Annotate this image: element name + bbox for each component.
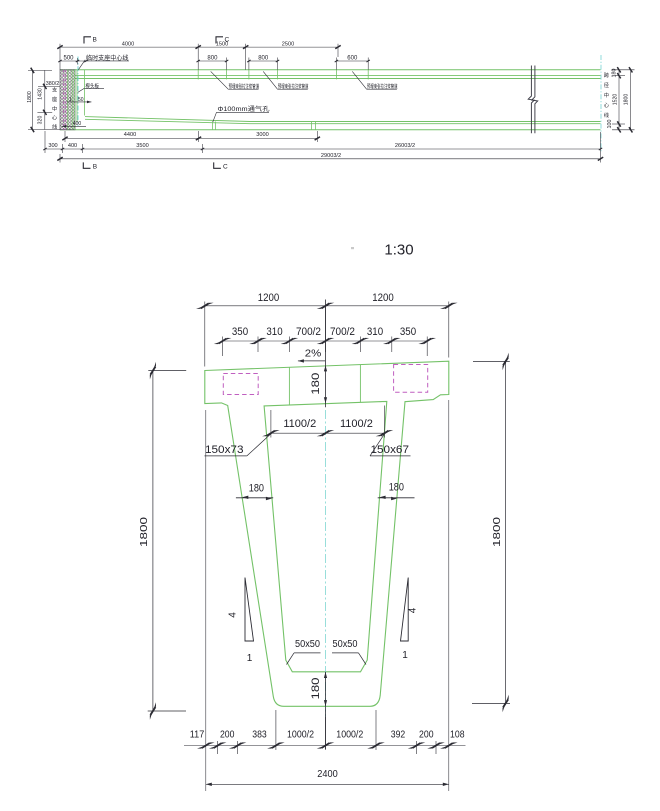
svg-text:380/2: 380/2: [46, 81, 60, 87]
svg-text:心: 心: [52, 115, 57, 122]
svg-text:180: 180: [249, 483, 264, 495]
svg-text:392: 392: [391, 730, 406, 741]
svg-text:跨: 跨: [604, 71, 610, 79]
svg-text:中: 中: [604, 91, 609, 99]
svg-text:180: 180: [612, 69, 618, 78]
svg-text:2%: 2%: [305, 348, 322, 360]
svg-text:180: 180: [310, 373, 322, 395]
svg-text:180: 180: [310, 678, 322, 700]
svg-text:心: 心: [604, 102, 609, 109]
svg-text:350: 350: [232, 326, 248, 338]
svg-text:1: 1: [402, 650, 408, 661]
svg-text:150x73: 150x73: [205, 444, 244, 456]
svg-text:200: 200: [220, 730, 235, 741]
svg-text:B: B: [93, 164, 97, 171]
svg-text:500: 500: [63, 55, 74, 61]
svg-text:中: 中: [52, 105, 57, 113]
svg-text:1800: 1800: [138, 517, 150, 547]
svg-text:1520: 1520: [613, 94, 619, 106]
svg-text:线: 线: [52, 123, 57, 131]
svg-text:3500: 3500: [136, 143, 148, 149]
svg-text:383: 383: [252, 730, 267, 741]
svg-text:117: 117: [190, 730, 205, 741]
svg-text:临时支座中心线: 临时支座中心线: [86, 54, 129, 62]
svg-text:3000: 3000: [256, 132, 268, 138]
svg-text:1800: 1800: [27, 91, 33, 103]
svg-text:1430: 1430: [37, 88, 43, 100]
svg-text:400: 400: [68, 143, 77, 149]
svg-text:1500: 1500: [216, 42, 228, 48]
svg-text:线: 线: [604, 111, 609, 119]
svg-text:支: 支: [52, 86, 57, 94]
svg-text:1000/2: 1000/2: [336, 730, 363, 741]
svg-text:4400: 4400: [124, 132, 136, 138]
svg-text:2500: 2500: [282, 42, 294, 48]
svg-text:1200: 1200: [258, 292, 280, 304]
svg-text:1100/2: 1100/2: [283, 418, 316, 430]
svg-text:1100/2: 1100/2: [340, 418, 373, 430]
svg-text:180: 180: [389, 482, 404, 494]
svg-text:径: 径: [604, 81, 609, 89]
svg-text:100: 100: [607, 120, 613, 129]
svg-text:座: 座: [52, 95, 57, 103]
svg-text:200: 200: [419, 730, 434, 741]
svg-text:800: 800: [258, 55, 269, 61]
svg-text:1800: 1800: [624, 94, 630, 106]
svg-text:1:30: 1:30: [384, 242, 413, 259]
svg-text:700/2: 700/2: [296, 326, 321, 338]
svg-text:350: 350: [400, 326, 416, 338]
svg-text:C: C: [223, 164, 228, 171]
svg-text:300: 300: [48, 143, 57, 149]
svg-text:4000: 4000: [122, 42, 134, 48]
svg-text:600: 600: [347, 55, 358, 61]
svg-text:29003/2: 29003/2: [321, 153, 341, 159]
svg-text:310: 310: [266, 326, 282, 338]
svg-text:1000/2: 1000/2: [287, 730, 314, 741]
svg-text:320: 320: [37, 116, 43, 125]
svg-text:50x50: 50x50: [333, 639, 358, 650]
svg-text:800: 800: [207, 55, 218, 61]
svg-text:1800: 1800: [491, 517, 503, 547]
svg-text:108: 108: [450, 730, 465, 741]
svg-text:2400: 2400: [317, 768, 338, 780]
svg-text:26003/2: 26003/2: [395, 143, 415, 149]
svg-text:50x50: 50x50: [295, 639, 320, 650]
svg-text:1: 1: [247, 653, 253, 664]
svg-text:B: B: [93, 37, 97, 44]
svg-text:700/2: 700/2: [330, 326, 355, 338]
svg-text:4: 4: [228, 612, 239, 618]
svg-text:4: 4: [408, 607, 419, 613]
svg-text:1200: 1200: [372, 292, 394, 304]
svg-text:310: 310: [367, 326, 383, 338]
